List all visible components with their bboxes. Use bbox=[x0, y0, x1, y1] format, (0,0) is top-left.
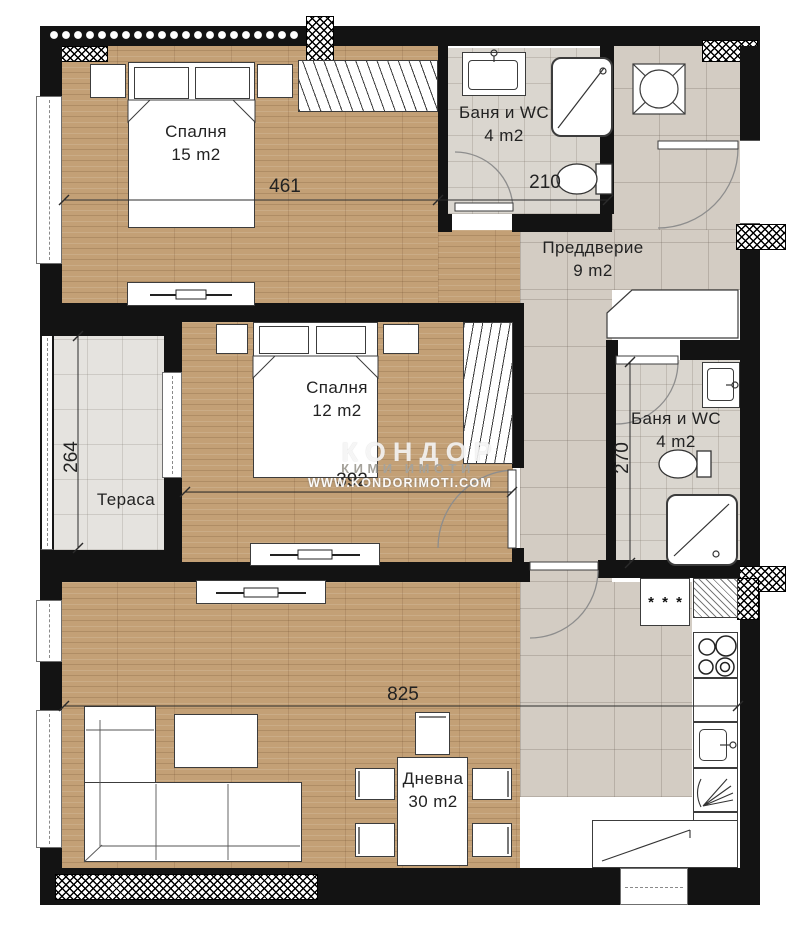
dim-terrace-height: 264 bbox=[47, 432, 97, 482]
wardrobe bbox=[463, 322, 513, 464]
room-area: 4 m2 bbox=[484, 126, 523, 146]
wall-bathroom1-bottom-a bbox=[438, 214, 452, 232]
room-name: Спалня bbox=[306, 378, 368, 398]
room-name: Баня и WC bbox=[459, 103, 549, 123]
living-window-2 bbox=[36, 710, 62, 848]
kitchen-cabinet-hatched bbox=[693, 578, 738, 618]
room-name: Баня и WC bbox=[631, 409, 721, 429]
dim-living-width: 825 bbox=[373, 684, 433, 706]
shower bbox=[666, 494, 738, 566]
dim-bathroom1-width: 210 bbox=[515, 172, 575, 194]
terrace-sliding-door bbox=[162, 372, 182, 478]
sofa-corner bbox=[84, 782, 302, 862]
wall-left-4 bbox=[40, 662, 62, 710]
terrace-label: Тераса bbox=[66, 490, 186, 510]
sink-basin bbox=[707, 368, 734, 401]
sofa-chaise bbox=[84, 706, 156, 784]
pillar-kitchen-corner bbox=[737, 578, 759, 620]
freezer-stars: * * * bbox=[646, 594, 686, 611]
kitchen-counter bbox=[693, 678, 738, 722]
wall-terrace-right-a bbox=[164, 322, 182, 372]
dish-rack bbox=[693, 768, 738, 812]
pillar-top-center bbox=[306, 16, 334, 62]
wall-bedroom2-right-b bbox=[512, 548, 524, 562]
wardrobe bbox=[298, 60, 438, 112]
dim-bedroom2-width: 392 bbox=[322, 470, 382, 492]
nightstand bbox=[90, 64, 126, 98]
room-name: Тераса bbox=[97, 490, 155, 510]
kitchen-peninsula bbox=[592, 820, 738, 868]
dining-chair bbox=[415, 712, 450, 755]
bathroom1-label: Баня и WC 4 m2 bbox=[424, 103, 584, 145]
room-name: Преддверие bbox=[542, 238, 643, 258]
pillow bbox=[134, 67, 189, 99]
cooktop bbox=[693, 632, 738, 678]
pillow bbox=[259, 326, 309, 354]
wall-bathroom1-bottom-b bbox=[512, 214, 612, 232]
dining-chair bbox=[472, 823, 512, 857]
bedroom1-label: Спалня 15 m2 bbox=[116, 122, 276, 164]
nightstand bbox=[383, 324, 419, 354]
corridor-floor bbox=[438, 230, 522, 303]
sink-basin bbox=[468, 60, 518, 90]
room-area: 30 m2 bbox=[408, 792, 457, 812]
wall-bedroom2-right-a bbox=[512, 322, 524, 468]
tv-cabinet bbox=[196, 580, 326, 604]
hall-cabinet bbox=[607, 290, 738, 338]
tv-cabinet bbox=[250, 543, 380, 566]
dim-bathroom2-height: 270 bbox=[598, 433, 648, 483]
nightstand bbox=[257, 64, 293, 98]
wall-terrace-top bbox=[40, 318, 180, 336]
wall-bathroom2-top-a bbox=[606, 340, 618, 360]
room-area: 12 m2 bbox=[312, 401, 361, 421]
bedroom1-window bbox=[36, 96, 62, 264]
pillow bbox=[316, 326, 366, 354]
dining-chair bbox=[355, 823, 395, 857]
kitchen-window-bottom bbox=[620, 868, 688, 905]
dim-bedroom1-width: 461 bbox=[255, 176, 315, 198]
nightstand bbox=[216, 324, 248, 354]
wall-top-insulation bbox=[48, 29, 298, 41]
bedroom2-label: Спалня 12 m2 bbox=[257, 378, 417, 420]
room-name: Спалня bbox=[165, 122, 227, 142]
tv-cabinet bbox=[127, 282, 255, 306]
hall-top-floor bbox=[612, 45, 740, 230]
kitchen-sink-basin bbox=[699, 729, 727, 761]
coffee-table bbox=[174, 714, 258, 768]
wall-bottom-insulation bbox=[55, 874, 318, 900]
floor-plan: * * * bbox=[0, 0, 800, 925]
entrance-opening bbox=[740, 140, 760, 224]
pillow bbox=[195, 67, 250, 99]
room-area: 15 m2 bbox=[171, 145, 220, 165]
room-area: 9 m2 bbox=[573, 261, 612, 281]
room-name: Дневна bbox=[403, 769, 464, 789]
hallway-label: Преддверие 9 m2 bbox=[513, 238, 673, 280]
room-area: 4 m2 bbox=[656, 432, 695, 452]
wall-left-1 bbox=[40, 46, 62, 96]
wall-bathroom2-top-b bbox=[680, 340, 740, 360]
living-window-1 bbox=[36, 600, 62, 662]
living-label: Дневна 30 m2 bbox=[373, 769, 493, 811]
pillar-right-1 bbox=[736, 224, 786, 250]
